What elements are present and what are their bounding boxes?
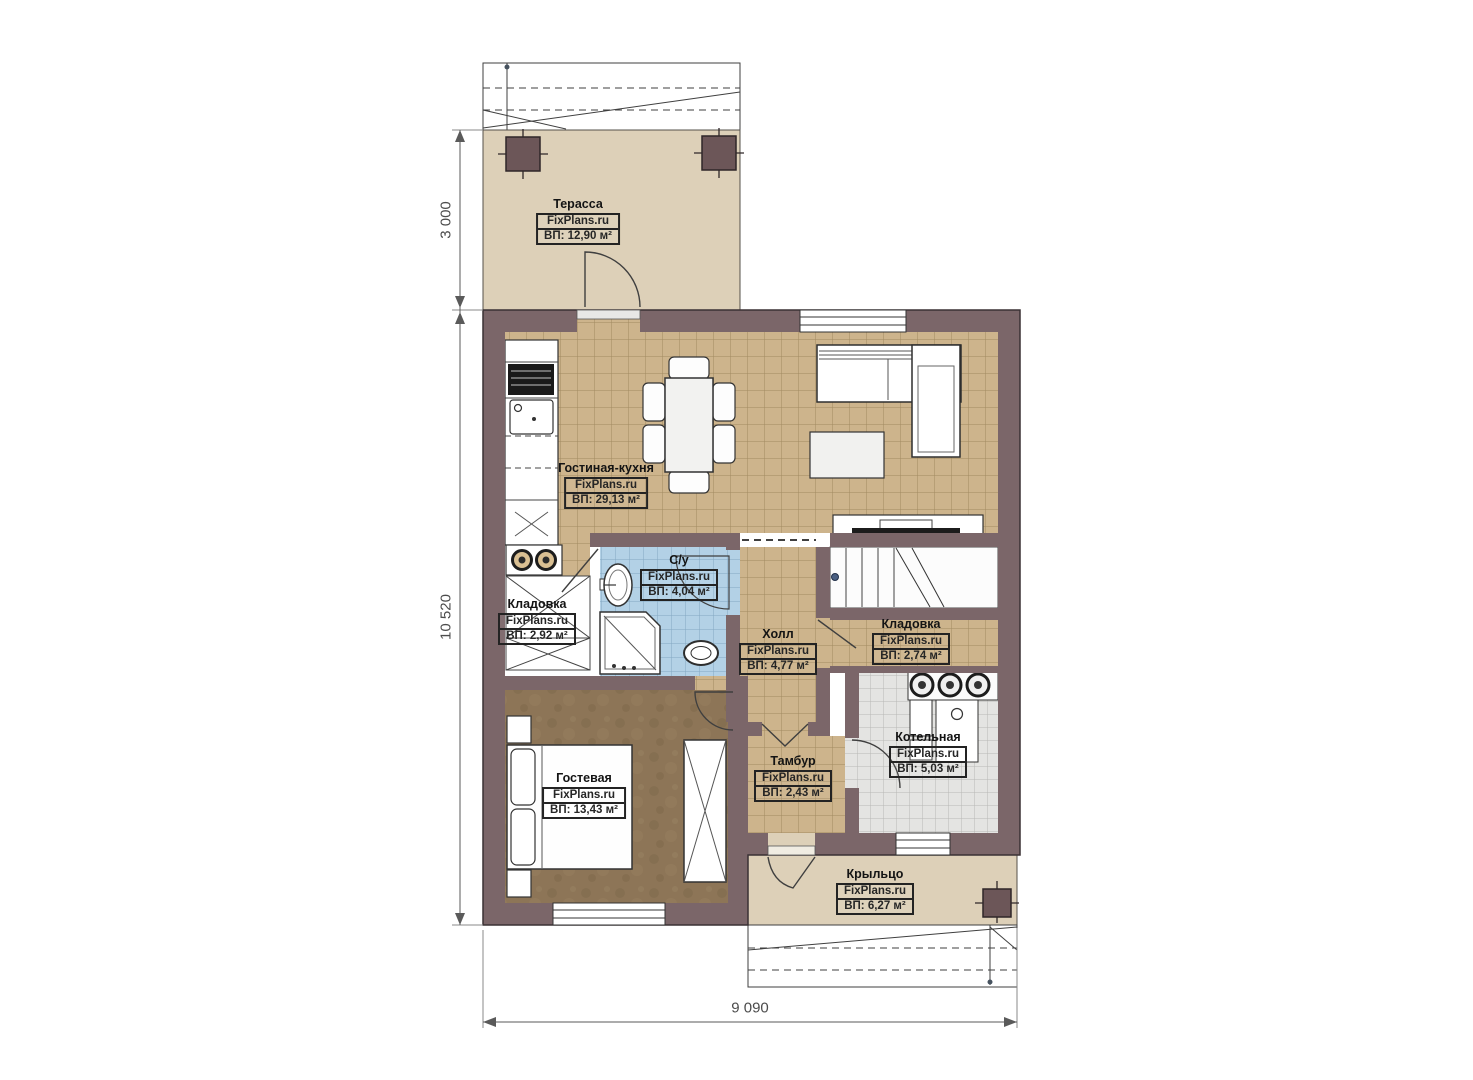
room-label-boiler: Котельная FixPlans.ru ВП: 5,03 м² xyxy=(889,730,967,778)
room-info-box: FixPlans.ru ВП: 4,04 м² xyxy=(640,569,718,601)
pillow-icon xyxy=(511,749,535,805)
room-label-living-kitchen: Гостиная-кухня FixPlans.ru ВП: 29,13 м² xyxy=(558,461,654,509)
wardrobe xyxy=(684,740,726,882)
room-info-box: FixPlans.ru ВП: 12,90 м² xyxy=(536,213,620,245)
room-name: Кладовка xyxy=(872,617,950,631)
watermark: FixPlans.ru xyxy=(891,748,965,761)
kitchen-counter xyxy=(505,340,558,545)
watermark: FixPlans.ru xyxy=(874,635,948,648)
room-info-box: FixPlans.ru ВП: 6,27 м² xyxy=(836,883,914,915)
watermark: FixPlans.ru xyxy=(544,789,624,802)
nightstand xyxy=(507,716,531,743)
room-label-terrace: Терасса FixPlans.ru ВП: 12,90 м² xyxy=(536,197,620,245)
watermark: FixPlans.ru xyxy=(756,772,830,785)
room-area: ВП: 2,74 м² xyxy=(874,648,948,663)
post-icon xyxy=(983,889,1011,917)
coffee-table xyxy=(810,432,884,478)
room-area: ВП: 2,43 м² xyxy=(756,785,830,800)
dimension-terrace-depth: 3 000 xyxy=(438,201,455,239)
room-name: Котельная xyxy=(889,730,967,744)
washing-machine-icon xyxy=(506,545,562,575)
room-area: ВП: 6,27 м² xyxy=(838,898,912,913)
porch-roof-overhang xyxy=(748,925,1017,987)
dimension-house-height: 10 520 xyxy=(438,594,455,640)
watermark: FixPlans.ru xyxy=(500,615,574,628)
room-area: ВП: 13,43 м² xyxy=(544,802,624,817)
room-area: ВП: 5,03 м² xyxy=(891,761,965,776)
room-label-porch: Крыльцо FixPlans.ru ВП: 6,27 м² xyxy=(836,867,914,915)
post-icon xyxy=(702,136,736,170)
room-name: Тамбур xyxy=(754,754,832,768)
pillow-icon xyxy=(511,809,535,865)
room-name: Гостевая xyxy=(542,771,626,785)
guest-room-window xyxy=(553,903,665,925)
room-info-box: FixPlans.ru ВП: 2,74 м² xyxy=(872,633,950,665)
room-name: С/у xyxy=(640,553,718,567)
room-label-hall: Холл FixPlans.ru ВП: 4,77 м² xyxy=(739,627,817,675)
dimension-house-width: 9 090 xyxy=(731,1000,769,1017)
room-name: Гостиная-кухня xyxy=(558,461,654,475)
room-info-box: FixPlans.ru ВП: 5,03 м² xyxy=(889,746,967,778)
shower-icon xyxy=(600,612,660,674)
boiler-room-window xyxy=(896,833,950,855)
room-label-guest: Гостевая FixPlans.ru ВП: 13,43 м² xyxy=(542,771,626,819)
room-area: ВП: 29,13 м² xyxy=(566,492,646,507)
room-area: ВП: 4,77 м² xyxy=(741,658,815,673)
room-info-box: FixPlans.ru ВП: 29,13 м² xyxy=(564,477,648,509)
room-area: ВП: 2,92 м² xyxy=(500,628,574,643)
room-label-bathroom: С/у FixPlans.ru ВП: 4,04 м² xyxy=(640,553,718,601)
stove-icon xyxy=(508,364,554,395)
room-info-box: FixPlans.ru ВП: 2,92 м² xyxy=(498,613,576,645)
nightstand xyxy=(507,870,531,897)
watermark: FixPlans.ru xyxy=(566,479,646,492)
entry-door-opening xyxy=(768,833,815,855)
room-info-box: FixPlans.ru ВП: 4,77 м² xyxy=(739,643,817,675)
room-label-tambour: Тамбур FixPlans.ru ВП: 2,43 м² xyxy=(754,754,832,802)
watermark: FixPlans.ru xyxy=(838,885,912,898)
post-icon xyxy=(506,137,540,171)
watermark: FixPlans.ru xyxy=(741,645,815,658)
terrace-roof-overhang xyxy=(483,63,740,130)
room-area: ВП: 12,90 м² xyxy=(538,228,618,243)
staircase xyxy=(830,547,998,608)
room-area: ВП: 4,04 м² xyxy=(642,584,716,599)
room-label-storage-right: Кладовка FixPlans.ru ВП: 2,74 м² xyxy=(872,617,950,665)
dining-table xyxy=(665,378,713,472)
terrace-door-opening xyxy=(577,310,640,332)
living-room-window xyxy=(800,310,906,332)
room-name: Терасса xyxy=(536,197,620,211)
floor-plan-drawing xyxy=(0,0,1473,1080)
room-info-box: FixPlans.ru ВП: 13,43 м² xyxy=(542,787,626,819)
room-name: Крыльцо xyxy=(836,867,914,881)
room-info-box: FixPlans.ru ВП: 2,43 м² xyxy=(754,770,832,802)
room-name: Холл xyxy=(739,627,817,641)
watermark: FixPlans.ru xyxy=(538,215,618,228)
toilet-icon xyxy=(684,641,718,665)
floor-plan-page: Терасса FixPlans.ru ВП: 12,90 м² Гостина… xyxy=(0,0,1473,1080)
room-name: Кладовка xyxy=(498,597,576,611)
watermark: FixPlans.ru xyxy=(642,571,716,584)
room-label-storage-left: Кладовка FixPlans.ru ВП: 2,92 м² xyxy=(498,597,576,645)
